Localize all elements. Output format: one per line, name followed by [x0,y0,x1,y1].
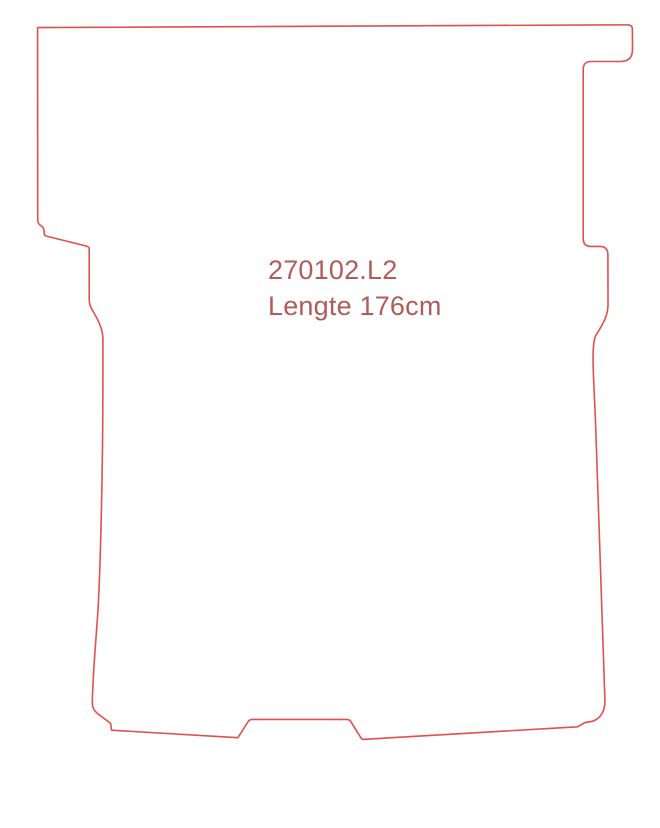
length-label: Lengte 176cm [268,288,442,324]
mat-template-drawing [0,0,660,828]
mat-outline-path [38,25,633,740]
part-number-label: 270102.L2 [268,252,442,288]
drawing-canvas: 270102.L2 Lengte 176cm [0,0,660,828]
template-labels: 270102.L2 Lengte 176cm [268,252,442,324]
